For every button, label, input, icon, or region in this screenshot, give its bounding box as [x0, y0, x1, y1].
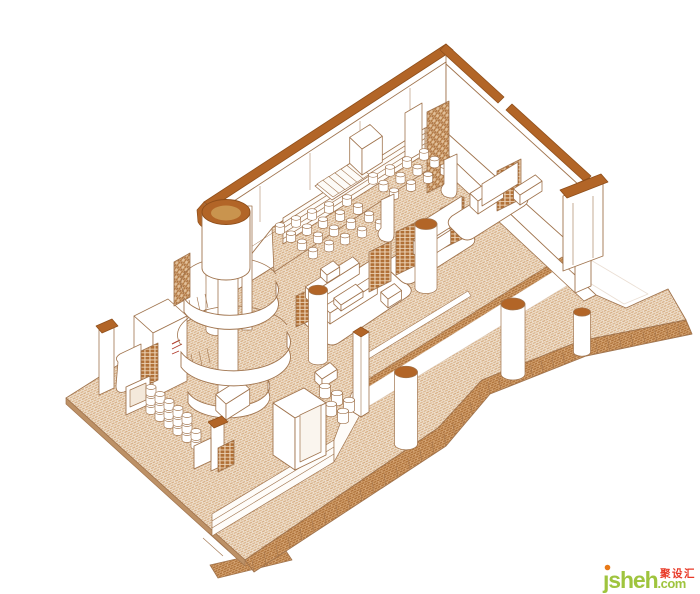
svg-text:ȷsheh: ȷsheh — [602, 567, 658, 593]
svg-text:聚设汇: 聚设汇 — [659, 567, 696, 580]
